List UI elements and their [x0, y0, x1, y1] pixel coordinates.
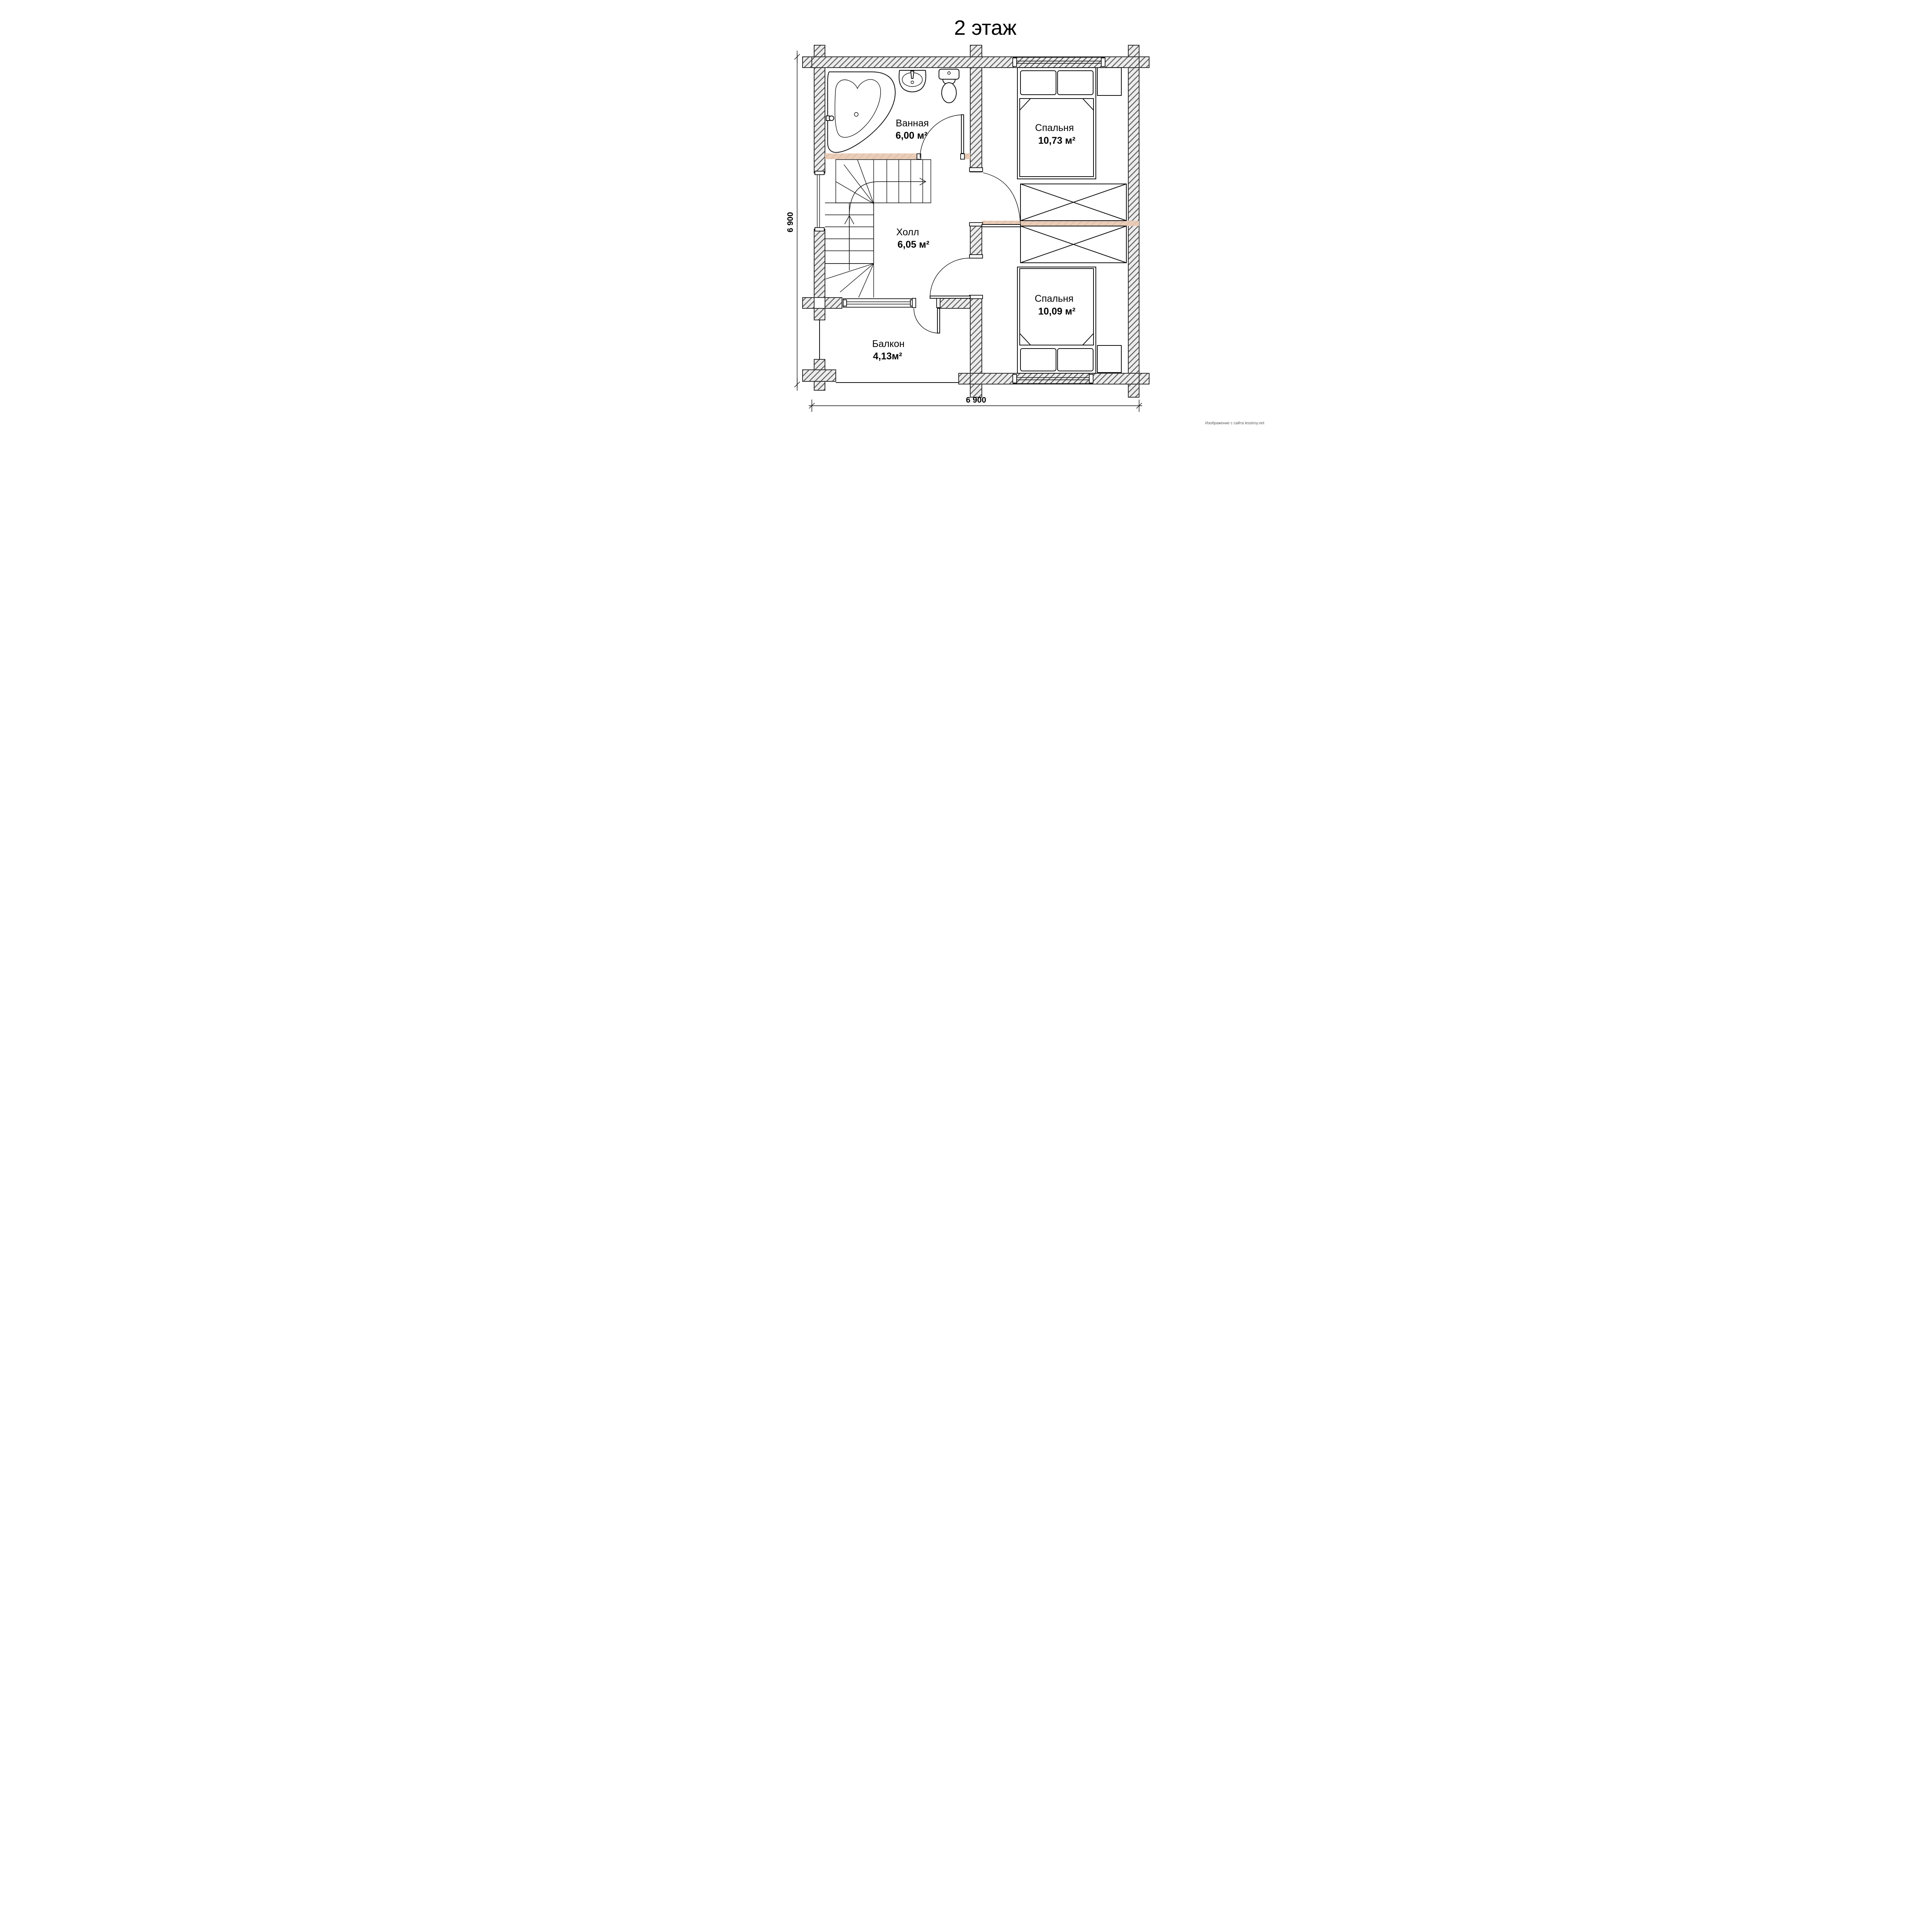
- room-balcony-area: 4,13м²: [873, 351, 902, 362]
- watermark: Изображение с сайта lesstroy.net: [1205, 421, 1264, 425]
- log-stub: [814, 45, 825, 57]
- room-bedroom1-name: Спальня: [1035, 122, 1074, 133]
- wall-hall-south-left: [825, 298, 842, 308]
- stair-upper-flight: [836, 160, 931, 203]
- dimension-bottom: 6 900: [809, 396, 1142, 412]
- wardrobe-lower: [1020, 226, 1126, 263]
- toilet: [939, 69, 959, 103]
- wall-interior-middle: [970, 226, 982, 258]
- page-title: 2 этаж: [954, 16, 1017, 39]
- floor-plan: 6 900 6 900 2 этаж Ванная 6,00 м² Спальн…: [663, 0, 1269, 429]
- pillow: [1020, 71, 1056, 95]
- dimension-left: 6 900: [786, 51, 800, 391]
- bathroom-fixtures: [826, 69, 959, 153]
- door-bedroom1: [969, 168, 1020, 227]
- room-balcony-name: Балкон: [872, 338, 905, 349]
- drawing-sheet: 6 900 6 900 2 этаж Ванная 6,00 м² Спальн…: [663, 0, 1269, 429]
- stair-treads-upper: [874, 160, 923, 203]
- pillow: [1020, 349, 1056, 371]
- toilet-bowl: [942, 83, 956, 103]
- bathtub-faucet-knob: [829, 116, 834, 121]
- wall-interior-lower: [970, 298, 982, 373]
- room-bedroom2-area: 10,09 м²: [1038, 306, 1075, 317]
- room-hall-name: Холл: [896, 227, 919, 238]
- room-bedroom1-area: 10,73 м²: [1038, 135, 1075, 146]
- wall-left-lower: [814, 229, 825, 298]
- door-bedroom2: [930, 255, 983, 299]
- log-stub: [803, 57, 812, 68]
- room-bathroom-name: Ванная: [896, 118, 929, 129]
- wardrobe-upper: [1020, 184, 1126, 221]
- wall-top: [812, 57, 1139, 68]
- room-bedroom2-name: Спальня: [1035, 293, 1073, 304]
- wall-interior-upper: [970, 68, 982, 172]
- log-stub: [1128, 384, 1139, 397]
- pillow: [1058, 71, 1093, 95]
- wall-right: [1128, 68, 1139, 373]
- window-left-wall: [815, 171, 824, 231]
- dim-bottom-label: 6 900: [966, 396, 986, 405]
- bed-bedroom2: [1017, 267, 1121, 373]
- beam-bathroom-south: [825, 153, 920, 159]
- door-balcony: [912, 298, 940, 333]
- log-stub: [970, 45, 982, 57]
- log-stub: [814, 308, 825, 320]
- wall-hall-south-right: [939, 298, 970, 308]
- log-stub: [970, 384, 982, 397]
- stair-winders-top: [836, 160, 874, 204]
- wall-bottom: [970, 373, 1139, 384]
- furniture-layer: [1017, 68, 1126, 373]
- log-stub: [1139, 57, 1149, 68]
- log-stub: [1128, 45, 1139, 57]
- corner-bathtub: [826, 72, 895, 153]
- window-hall-balcony: [843, 299, 914, 307]
- stair-walk-line: [849, 182, 925, 270]
- room-hall-area: 6,05 м²: [898, 239, 929, 250]
- log-stub: [959, 373, 970, 384]
- nightstand: [1097, 68, 1121, 95]
- pedestal-sink: [899, 70, 926, 92]
- log-stub: [803, 370, 836, 381]
- nightstand: [1097, 345, 1121, 373]
- room-bathroom-area: 6,00 м²: [896, 130, 927, 141]
- pillow: [1058, 349, 1093, 371]
- wall-left-upper: [814, 68, 825, 173]
- dim-left-label: 6 900: [786, 212, 795, 233]
- sink-faucet: [911, 71, 914, 78]
- log-stub: [1139, 373, 1149, 384]
- log-stub: [803, 298, 814, 308]
